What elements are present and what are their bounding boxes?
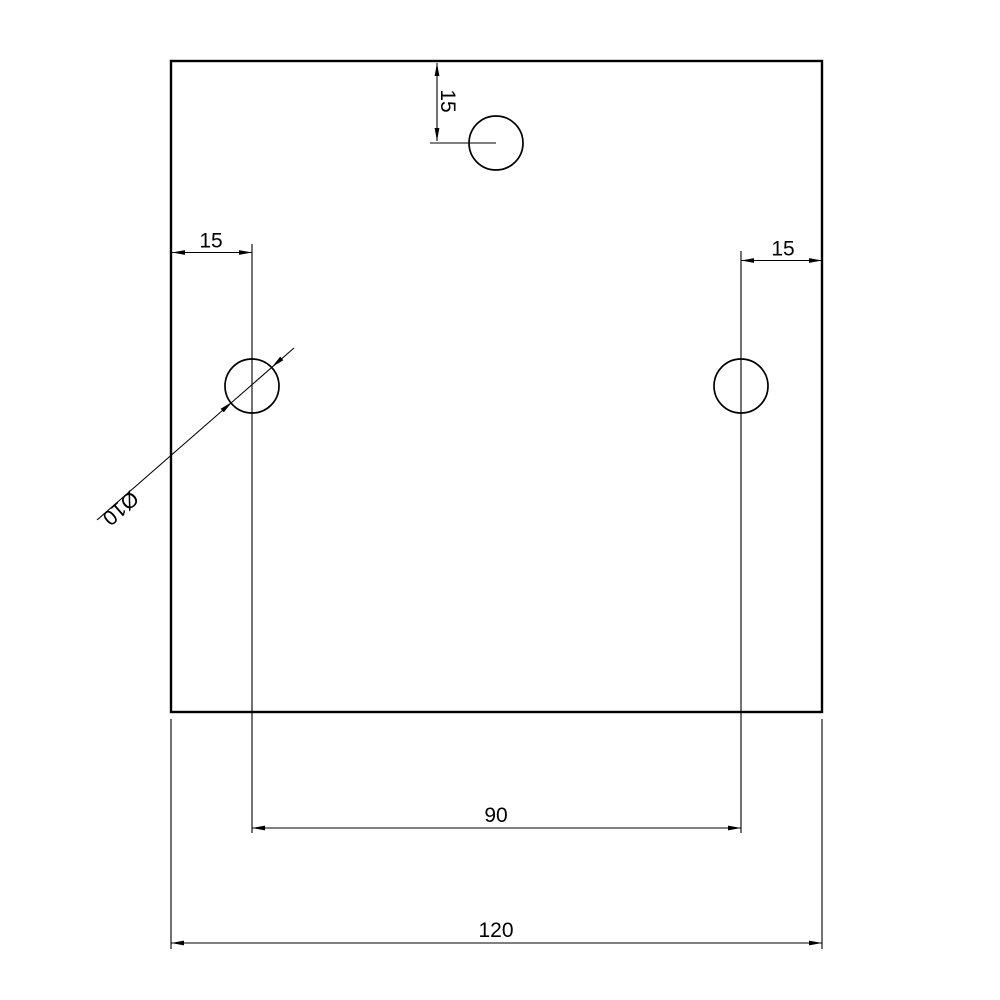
dimension-label-hole-diameter: Ø10 (98, 486, 143, 529)
arrowhead-icon (171, 941, 184, 946)
dimension-overall-width: 120 (171, 919, 822, 945)
arrowhead-icon (435, 128, 440, 141)
arrowhead-icon (809, 258, 822, 263)
dimension-label-overall-width: 120 (478, 919, 513, 942)
arrowhead-icon (741, 258, 754, 263)
dimension-right-hole-offset: 15 (741, 238, 822, 263)
plate-outline (171, 61, 822, 712)
technical-drawing: 15 15 15 90 120 Ø10 (0, 0, 1000, 1000)
dimension-left-hole-offset: 15 (172, 230, 252, 255)
dimension-label-hole-spacing: 90 (484, 804, 507, 827)
dimension-hole-spacing: 90 (252, 804, 741, 830)
arrowhead-icon (435, 63, 440, 76)
arrowhead-icon (172, 250, 185, 255)
arrowhead-icon (809, 941, 822, 946)
dimension-label-left-offset: 15 (199, 230, 222, 253)
leader-hole-diameter: Ø10 (97, 348, 294, 530)
arrowhead-icon (728, 826, 741, 831)
dimension-label-right-offset: 15 (771, 238, 794, 261)
arrowhead-icon (252, 826, 265, 831)
arrowhead-icon (239, 250, 252, 255)
dimension-top-hole-offset: 15 (435, 63, 459, 141)
dimension-label-top-offset: 15 (436, 89, 459, 112)
